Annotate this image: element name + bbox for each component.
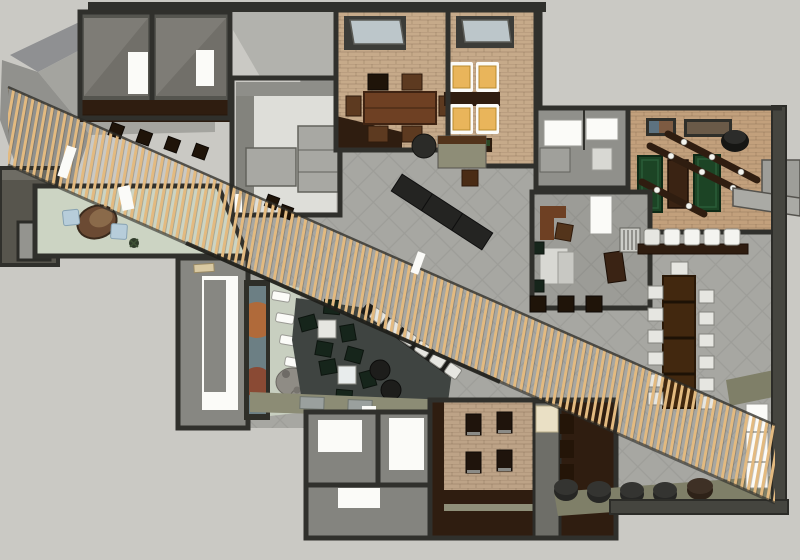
bar-stool-white: [684, 229, 700, 245]
kitchen-island: [246, 148, 296, 186]
office-green-chair: [534, 280, 544, 292]
patio-table-base: [467, 470, 480, 473]
office-desk-return: [540, 218, 554, 240]
lounge-chair: [319, 359, 337, 376]
floor-plan-render: [0, 0, 800, 560]
light-bulb: [668, 153, 674, 159]
patio-table-base: [498, 430, 511, 433]
bar-stool-white: [704, 229, 720, 245]
restroom-fixture: [338, 488, 380, 508]
patio-table: [497, 450, 512, 471]
storage-unit: [586, 118, 618, 140]
bar-stool-white: [724, 229, 740, 245]
patio-table-base: [498, 468, 511, 471]
stool-top: [587, 481, 611, 497]
lounge-table: [338, 366, 356, 384]
communal-chair: [648, 308, 663, 321]
communal-chair: [699, 378, 714, 391]
communal-chair: [648, 286, 663, 299]
office-desk: [540, 206, 566, 218]
round-stool: [381, 380, 401, 400]
restrooms: [306, 406, 430, 538]
dining-chair: [368, 74, 388, 90]
wood-counter-band: [80, 100, 232, 114]
wall-shelf: [560, 440, 574, 458]
wall-shelf: [560, 414, 574, 434]
square-stool: [558, 296, 574, 312]
outer-wall-bottom: [610, 500, 788, 514]
host-stand-top: [438, 136, 486, 144]
square-stool: [530, 296, 546, 312]
stool-top: [687, 478, 713, 494]
bench-cushion: [300, 397, 324, 410]
communal-chair: [699, 334, 714, 347]
restroom-fixture: [318, 420, 362, 452]
pebble: [294, 387, 301, 394]
bench-plank: [194, 263, 215, 272]
vestibule: [178, 258, 248, 428]
stair-landing: [444, 504, 536, 511]
light-bulb: [686, 203, 692, 209]
light-bulb: [681, 139, 687, 145]
booth-seat-lit: [479, 108, 496, 130]
booth-seat-lit: [453, 66, 470, 88]
office-sofa-seat: [558, 252, 574, 284]
lounge-chair: [315, 341, 333, 358]
wall-shelf: [560, 464, 574, 480]
patio-table: [497, 412, 512, 433]
booth-table: [444, 92, 500, 106]
picture-art-blue: [649, 121, 659, 133]
lounge-table: [318, 320, 336, 338]
dining-chair: [368, 126, 388, 142]
communal-chair: [699, 312, 714, 325]
office-armchair: [604, 251, 626, 283]
storage-box: [592, 148, 612, 170]
office-white-table: [590, 196, 612, 234]
round-table: [412, 134, 436, 158]
floor-plan-svg: [0, 0, 800, 560]
office-green-chair: [534, 242, 544, 254]
stool-top: [554, 479, 578, 495]
private-dining-room: [336, 10, 454, 150]
bar-stool-white: [664, 229, 680, 245]
light-bulb: [738, 169, 744, 175]
guest-seat: [110, 223, 127, 239]
bar-shelf: [620, 228, 640, 252]
communal-chair: [648, 352, 663, 365]
booth-seat-lit: [453, 108, 470, 130]
communal-chair: [699, 356, 714, 369]
picture-art: [687, 122, 729, 134]
kitchen-counter: [298, 126, 338, 192]
skylight-glass: [462, 20, 511, 42]
patio-table: [466, 414, 481, 435]
communal-chair: [699, 290, 714, 303]
vestibule-inner: [204, 280, 226, 392]
light-bulb: [699, 169, 705, 175]
storage-counter: [540, 148, 570, 172]
patio-brick-pattern: [444, 400, 534, 490]
office-chair: [555, 223, 574, 242]
dining-chair: [402, 74, 422, 90]
communal-chair: [648, 330, 663, 343]
restroom-fixture: [389, 418, 424, 470]
pebble: [282, 370, 290, 378]
lounge-chair: [340, 324, 357, 342]
bar-counter: [620, 228, 748, 254]
storage-unit: [544, 120, 582, 146]
room-opening: [196, 50, 214, 86]
guest-seat: [62, 209, 79, 226]
dining-chair: [346, 96, 361, 116]
side-table: [462, 170, 478, 186]
stool-top: [653, 482, 677, 498]
room-opening: [128, 52, 148, 94]
patio-table: [466, 452, 481, 473]
round-stool: [370, 360, 390, 380]
light-bulb: [709, 154, 715, 160]
communal-head-chair: [671, 262, 688, 275]
storage-rooms: [536, 108, 628, 188]
stool-top: [620, 482, 644, 498]
cylinder-top: [724, 130, 746, 144]
booth-seat-lit: [479, 66, 496, 88]
light-bulb: [654, 187, 660, 193]
square-stool: [586, 296, 602, 312]
patio-table-base: [467, 432, 480, 435]
kitchen-top-step: [236, 82, 336, 96]
bar-stool-white: [644, 229, 660, 245]
skylight-glass: [350, 20, 404, 44]
column-cap: [536, 406, 558, 432]
